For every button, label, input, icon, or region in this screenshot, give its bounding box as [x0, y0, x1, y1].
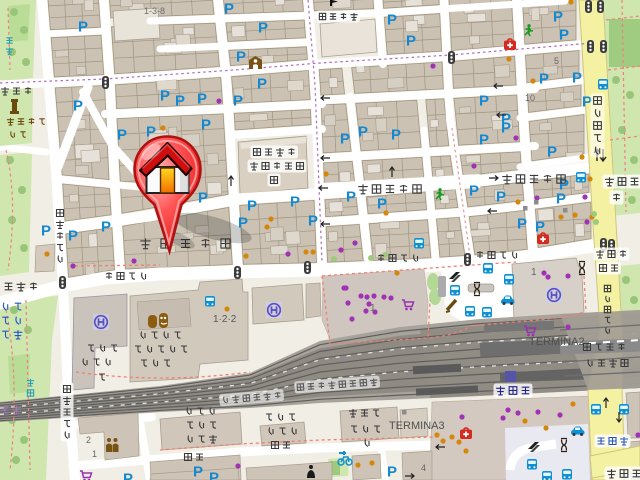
- svg-text:P: P: [553, 9, 563, 26]
- svg-text:P: P: [160, 88, 170, 105]
- svg-text:P: P: [340, 131, 350, 148]
- svg-text:P: P: [175, 93, 185, 110]
- svg-text:P: P: [247, 198, 257, 215]
- svg-text:P: P: [101, 219, 111, 236]
- svg-text:P: P: [73, 98, 83, 115]
- svg-text:P: P: [123, 471, 133, 480]
- svg-text:1: 1: [531, 267, 537, 278]
- svg-text:P: P: [258, 20, 268, 37]
- svg-text:P: P: [559, 27, 569, 44]
- svg-text:10: 10: [525, 93, 535, 103]
- svg-text:P: P: [257, 76, 267, 93]
- svg-text:TERMINA2: TERMINA2: [529, 336, 585, 348]
- svg-text:P: P: [308, 213, 318, 230]
- svg-text:P: P: [387, 464, 397, 480]
- svg-text:P: P: [391, 127, 401, 144]
- svg-text:P: P: [193, 464, 203, 480]
- svg-text:P: P: [479, 132, 489, 149]
- svg-text:5: 5: [554, 56, 559, 66]
- svg-text:P: P: [78, 19, 88, 36]
- svg-text:P: P: [68, 228, 78, 245]
- svg-text:P: P: [479, 93, 489, 110]
- svg-text:TERMINA3: TERMINA3: [389, 420, 445, 432]
- svg-text:P: P: [358, 124, 368, 141]
- svg-text:P: P: [201, 117, 211, 134]
- svg-text:2: 2: [86, 435, 91, 445]
- svg-text:1-3-8: 1-3-8: [144, 6, 165, 16]
- svg-text:P: P: [198, 190, 208, 207]
- svg-text:P: P: [233, 93, 243, 110]
- svg-text:P: P: [547, 144, 557, 161]
- svg-text:P: P: [290, 194, 300, 211]
- svg-text:P: P: [517, 216, 527, 233]
- svg-text:P: P: [41, 223, 51, 240]
- svg-text:P: P: [406, 33, 416, 50]
- svg-text:P: P: [197, 91, 207, 108]
- svg-text:P: P: [501, 120, 511, 137]
- svg-text:P: P: [572, 70, 582, 87]
- svg-text:P: P: [469, 183, 479, 200]
- svg-text:P: P: [346, 189, 356, 206]
- svg-text:P: P: [117, 127, 127, 144]
- svg-text:P: P: [224, 1, 234, 18]
- svg-text:1: 1: [92, 449, 97, 459]
- svg-text:P: P: [556, 191, 566, 208]
- svg-text:P: P: [387, 12, 397, 29]
- svg-text:1·2·2: 1·2·2: [213, 314, 237, 325]
- svg-text:1: 1: [370, 303, 376, 314]
- svg-text:4: 4: [421, 463, 426, 473]
- svg-text:P: P: [539, 71, 549, 88]
- svg-text:P: P: [236, 49, 246, 66]
- svg-text:P: P: [377, 196, 387, 213]
- svg-text:P: P: [496, 189, 506, 206]
- svg-text:P: P: [209, 470, 219, 480]
